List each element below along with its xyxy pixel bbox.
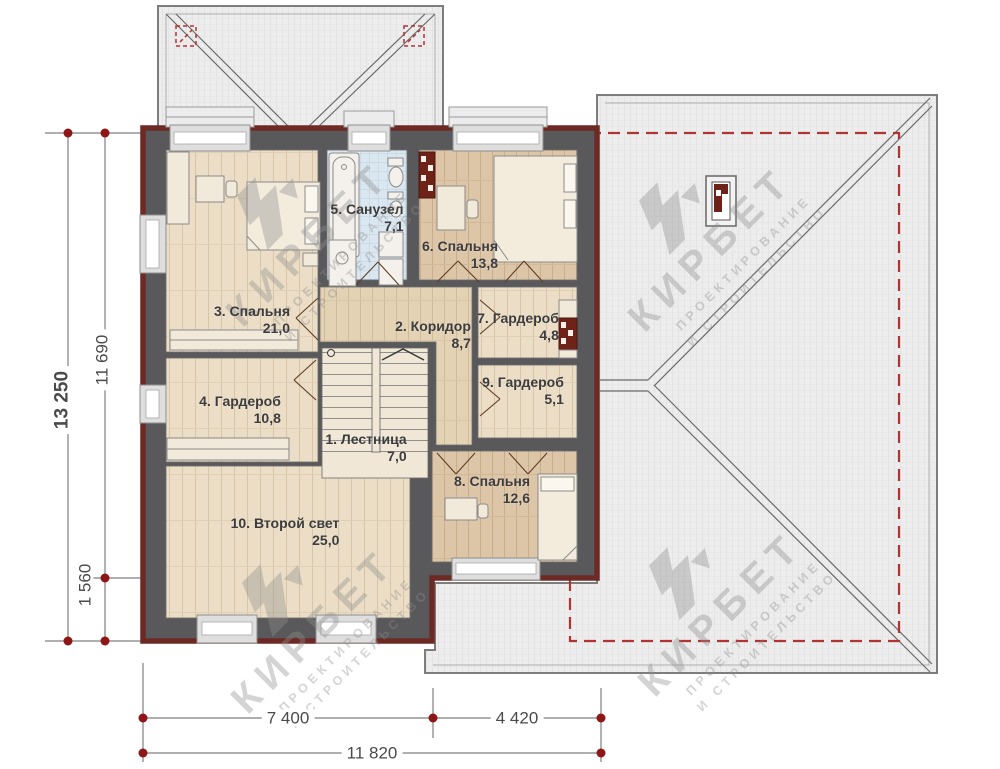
dim-left-inner: 11 690 (94, 330, 111, 391)
room3-desk (196, 176, 224, 202)
room-6-label: 6. Спальня13,8 (422, 238, 498, 272)
room-4-label: 4. Гардероб10,8 (199, 393, 281, 427)
dim-bottom-right: 4 420 (491, 710, 544, 727)
dim-left-outer: 13 250 (53, 366, 72, 434)
room-7-label: 7. Гардероб4,8 (477, 310, 559, 344)
vanity (329, 240, 356, 286)
room-10-label: 10. Второй свет25,0 (231, 515, 340, 549)
dim-bottom-left: 7 400 (262, 710, 315, 727)
room-5-label: 5. Санузел7,1 (330, 201, 403, 235)
toilet (388, 158, 403, 166)
dim-bottom-total: 11 820 (342, 745, 403, 762)
room-1-label: 1. Лестница7,0 (325, 431, 406, 465)
dim-left-lower: 1 560 (77, 559, 94, 612)
bidet (388, 192, 403, 199)
room6-desk (437, 186, 465, 230)
dryer (379, 259, 403, 285)
washer (379, 232, 403, 257)
roof-chimney (706, 176, 736, 226)
room-2-label: 2. Коридор8,7 (395, 318, 471, 352)
room-9-label: 9. Гардероб5,1 (482, 374, 564, 408)
room-3-label: 3. Спальня21,0 (214, 303, 290, 337)
floor-plan-canvas: КИРБЕТ ПРОЕКТИРОВАНИЕ И СТРОИТЕЛЬСТВО КИ… (0, 0, 1000, 769)
room-8-label: 8. Спальня12,6 (454, 473, 530, 507)
room3-wardrobe-left (167, 152, 189, 224)
